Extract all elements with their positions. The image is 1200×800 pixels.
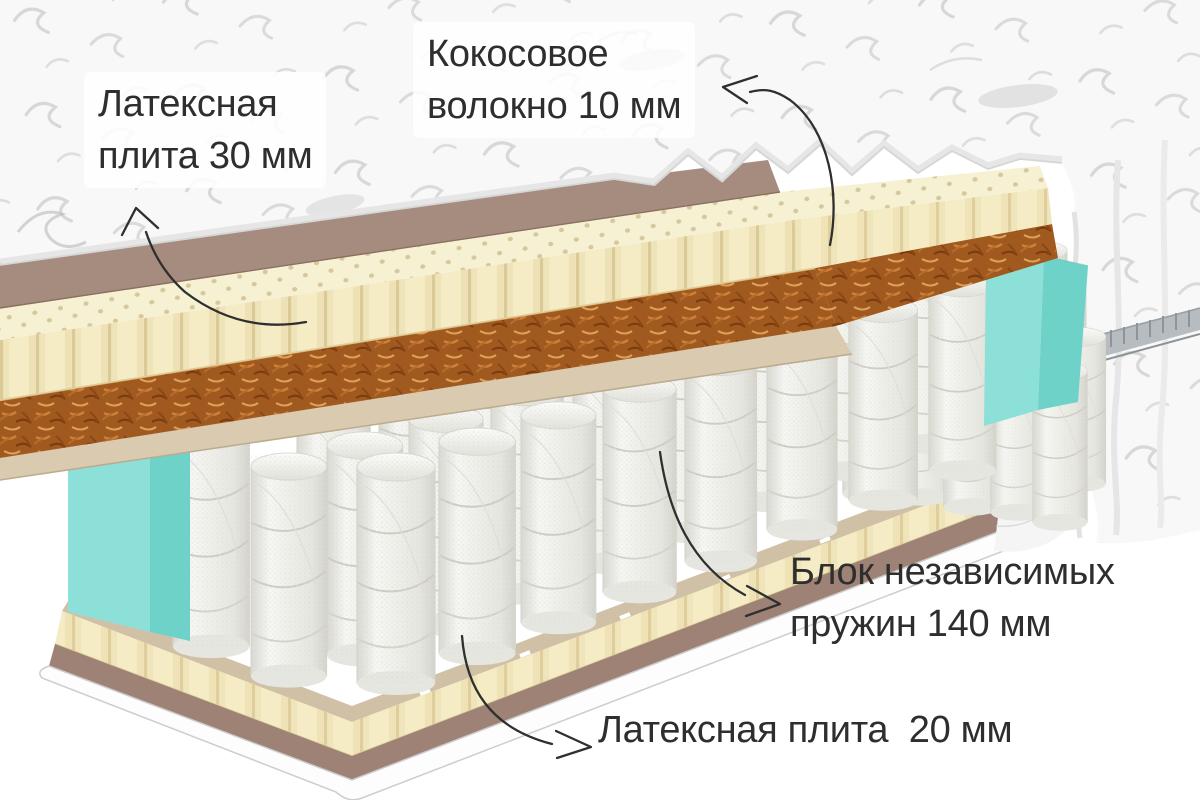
callout-latex-plate-20mm: Латексная плита 20 мм xyxy=(598,704,1012,756)
callout-coconut-fiber-10mm-line1: Кокосовое xyxy=(427,28,681,80)
callout-coconut-fiber-10mm-line2: волокно 10 мм xyxy=(427,80,681,132)
callout-latex-plate-30mm-line1: Латексная xyxy=(98,78,312,130)
callout-spring-block-140mm-line2: пружин 140 мм xyxy=(790,598,1115,650)
callout-latex-plate-30mm-line2: плита 30 мм xyxy=(98,130,312,182)
callout-latex-plate-20mm-line1: Латексная плита 20 мм xyxy=(598,704,1012,756)
callout-coconut-fiber-10mm: Кокосовое волокно 10 мм xyxy=(413,22,695,138)
callout-spring-block-140mm-line1: Блок независимых xyxy=(790,546,1115,598)
mattress-diagram-page: Латексная плита 30 мм Кокосовое волокно … xyxy=(0,0,1200,800)
callout-latex-plate-30mm: Латексная плита 30 мм xyxy=(84,72,326,188)
callout-spring-block-140mm: Блок независимых пружин 140 мм xyxy=(790,546,1115,650)
edge-support-foam-right xyxy=(984,256,1088,426)
